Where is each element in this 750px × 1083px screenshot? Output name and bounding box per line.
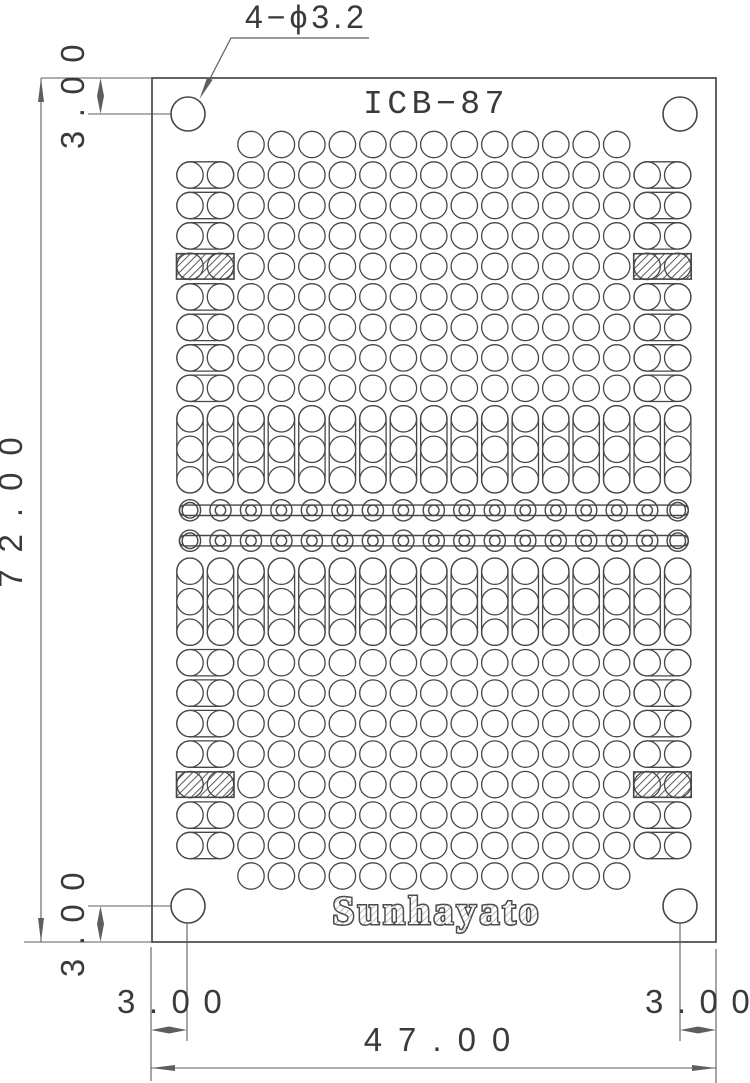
- svg-text:3.00: 3.00: [54, 31, 91, 149]
- svg-text:3.00: 3.00: [645, 983, 750, 1020]
- svg-text:4−ϕ3.2: 4−ϕ3.2: [245, 0, 368, 35]
- svg-text:3.00: 3.00: [54, 859, 91, 977]
- svg-text:72.00: 72.00: [0, 420, 29, 588]
- svg-text:Sunhayato: Sunhayato: [332, 888, 541, 933]
- svg-text:3.00: 3.00: [117, 983, 235, 1020]
- svg-text:47.00: 47.00: [364, 1021, 527, 1058]
- svg-text:ICB−87: ICB−87: [363, 86, 509, 123]
